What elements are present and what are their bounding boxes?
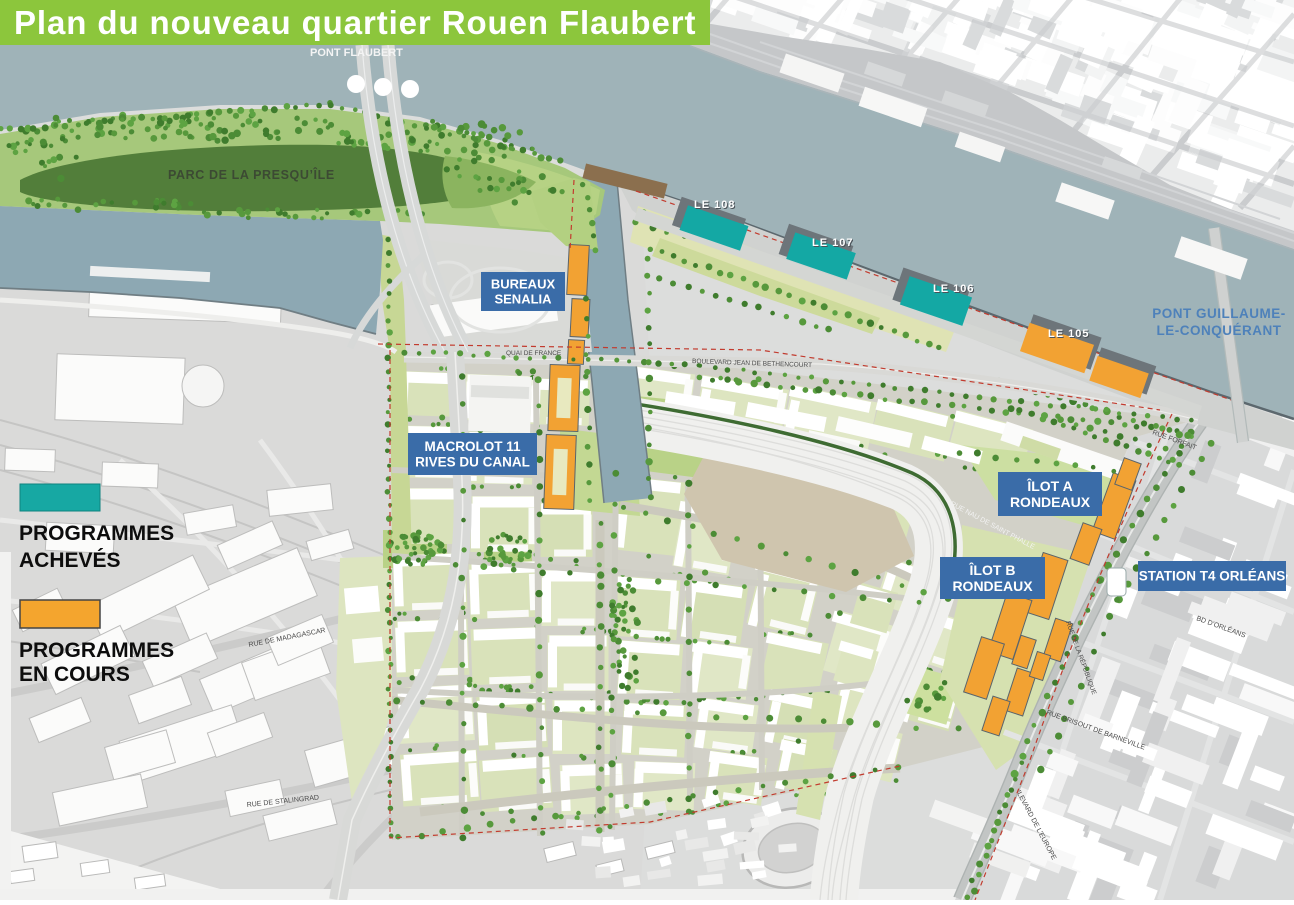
svg-text:ÎLOT A: ÎLOT A xyxy=(1026,477,1072,494)
svg-text:PARC DE LA PRESQU’ÎLE: PARC DE LA PRESQU’ÎLE xyxy=(168,167,335,182)
svg-text:ACHEVÉS: ACHEVÉS xyxy=(19,549,121,572)
svg-text:LE 106: LE 106 xyxy=(933,283,974,295)
svg-text:MACROLOT 11: MACROLOT 11 xyxy=(424,439,521,454)
svg-text:PROGRAMMES: PROGRAMMES xyxy=(19,639,174,662)
svg-text:SENALIA: SENALIA xyxy=(494,292,552,307)
svg-text:LE 105: LE 105 xyxy=(1048,328,1089,340)
svg-text:STATION T4 ORLÉANS: STATION T4 ORLÉANS xyxy=(1139,569,1286,584)
svg-text:Plan du nouveau quartier Rouen: Plan du nouveau quartier Rouen Flaubert xyxy=(14,4,696,41)
svg-text:PONT GUILLAUME-: PONT GUILLAUME- xyxy=(1152,306,1286,321)
svg-text:RONDEAUX: RONDEAUX xyxy=(952,578,1033,594)
svg-text:LE-CONQUÉRANT: LE-CONQUÉRANT xyxy=(1157,323,1282,338)
svg-text:EN COURS: EN COURS xyxy=(19,663,130,686)
svg-text:LE 108: LE 108 xyxy=(694,199,735,211)
svg-text:PROGRAMMES: PROGRAMMES xyxy=(19,522,174,545)
svg-text:LE 107: LE 107 xyxy=(812,237,853,249)
svg-text:RIVES DU CANAL: RIVES DU CANAL xyxy=(415,455,530,470)
svg-text:ÎLOT B: ÎLOT B xyxy=(969,561,1016,578)
svg-text:RONDEAUX: RONDEAUX xyxy=(1010,494,1091,510)
svg-text:PONT FLAUBERT: PONT FLAUBERT xyxy=(310,47,403,59)
svg-text:BUREAUX: BUREAUX xyxy=(491,277,556,292)
